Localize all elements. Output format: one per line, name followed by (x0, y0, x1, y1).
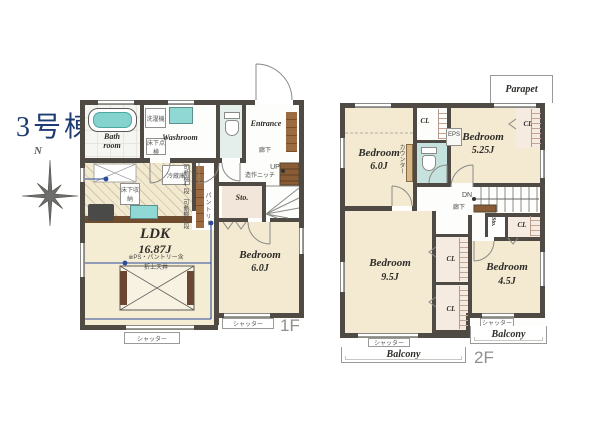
room-label-bedroom1: Bedroom (225, 249, 295, 262)
wall (85, 158, 150, 163)
wall (412, 206, 417, 211)
shutter-box: シャッター (124, 332, 180, 344)
ceiling-note: 折上天井 (136, 265, 176, 272)
bathtub-water (93, 112, 132, 128)
wall (140, 105, 144, 158)
shelf-note: 可動棚4段 (181, 164, 190, 198)
wall (494, 237, 544, 241)
wall (505, 213, 508, 237)
window (340, 262, 345, 292)
underfloor-label: 床下収納 (121, 185, 139, 203)
hall-label: 廊下 (447, 205, 471, 212)
wall (262, 182, 266, 222)
wall (436, 234, 468, 237)
balcony: Balcony (470, 326, 547, 344)
compass-icon (22, 160, 78, 226)
shoe-cabinet (286, 112, 297, 152)
room-label-washroom: Washroom (150, 133, 210, 142)
wall (436, 330, 468, 333)
wall (340, 206, 392, 211)
closet-label: CL (437, 255, 465, 263)
room-label-bedroomC: Bedroom (350, 257, 430, 270)
window (98, 100, 134, 105)
wall (214, 163, 219, 325)
wall (218, 218, 248, 222)
niche-label: 造作ニッチ (242, 173, 278, 180)
wall (417, 140, 447, 143)
stove (88, 204, 114, 221)
floor1-tag: 1F (280, 316, 300, 336)
wall (242, 105, 246, 158)
toilet-bowl (422, 155, 436, 171)
window (355, 103, 391, 108)
shutter-label: シャッター (374, 338, 404, 347)
shutter-label: シャッター (233, 319, 263, 328)
room-label-ldk: LDK (125, 226, 185, 243)
parapet-label: Parapet (505, 84, 537, 96)
toilet-bowl (225, 120, 239, 136)
closet-label: CL (518, 120, 538, 128)
window (80, 168, 85, 182)
room-label-bath: Bath room (99, 132, 125, 150)
room-size-bedroomB: 5.25J (448, 145, 518, 157)
balcony-label: Balcony (387, 349, 421, 361)
floor2-tag: 2F (474, 348, 494, 368)
wall (216, 105, 220, 158)
window (168, 100, 194, 105)
window (540, 150, 545, 178)
window (494, 103, 536, 108)
room-size-bedroomC: 9.5J (350, 272, 430, 284)
wall (240, 158, 246, 163)
washer-label: 洗濯機 (146, 114, 164, 123)
closet-label: CL (437, 305, 465, 313)
room-label-bedroomD: Bedroom (469, 261, 545, 274)
vanity-sink (169, 107, 193, 124)
wall (473, 183, 544, 187)
wall (436, 282, 468, 285)
room-label-bedroomB: Bedroom (448, 131, 518, 144)
toilet (224, 112, 240, 119)
kitchen-sink (130, 205, 158, 219)
room-label-storage1: Sto. (222, 193, 262, 202)
window (299, 228, 304, 254)
door-arc (256, 64, 292, 100)
underfloor-storage-box: 床下収納 (120, 183, 140, 205)
room-label-entrance: Entrance (241, 119, 291, 128)
shutter-box: シャッター (222, 318, 274, 329)
counter-label: カウンター (397, 144, 406, 178)
wall (80, 100, 85, 330)
storage2-label: Sto. (490, 217, 496, 236)
wall (413, 183, 451, 187)
ldk-note: ※PS・パントリー含 (118, 255, 194, 262)
wall (485, 213, 488, 237)
entrance-door-opening (255, 100, 293, 105)
wall (218, 182, 266, 186)
closet-label: CL (510, 221, 534, 229)
balcony: Balcony (341, 347, 466, 363)
pantry-label: パントリー (203, 192, 212, 230)
washing-machine: 洗濯機 (145, 108, 166, 128)
wall (432, 211, 436, 333)
up-label: UP (266, 164, 284, 172)
closet-label: CL (414, 117, 436, 125)
dn-label: DN (458, 192, 476, 200)
wall (299, 100, 304, 318)
floorplan-canvas: 3号棟 N (0, 0, 600, 432)
toilet (421, 147, 437, 154)
parapet: Parapet (490, 75, 553, 103)
shutter-box: シャッター (368, 338, 410, 347)
room-size-bedroomD: 4.5J (469, 276, 545, 288)
hall-label: 廊下 (252, 148, 278, 155)
wall (270, 218, 299, 222)
north-label: N (30, 145, 46, 157)
balcony-label: Balcony (492, 329, 526, 341)
window (80, 243, 85, 277)
shutter-label: シャッター (137, 334, 167, 343)
room-size-bedroom1: 6.0J (225, 263, 295, 275)
window (126, 325, 194, 330)
